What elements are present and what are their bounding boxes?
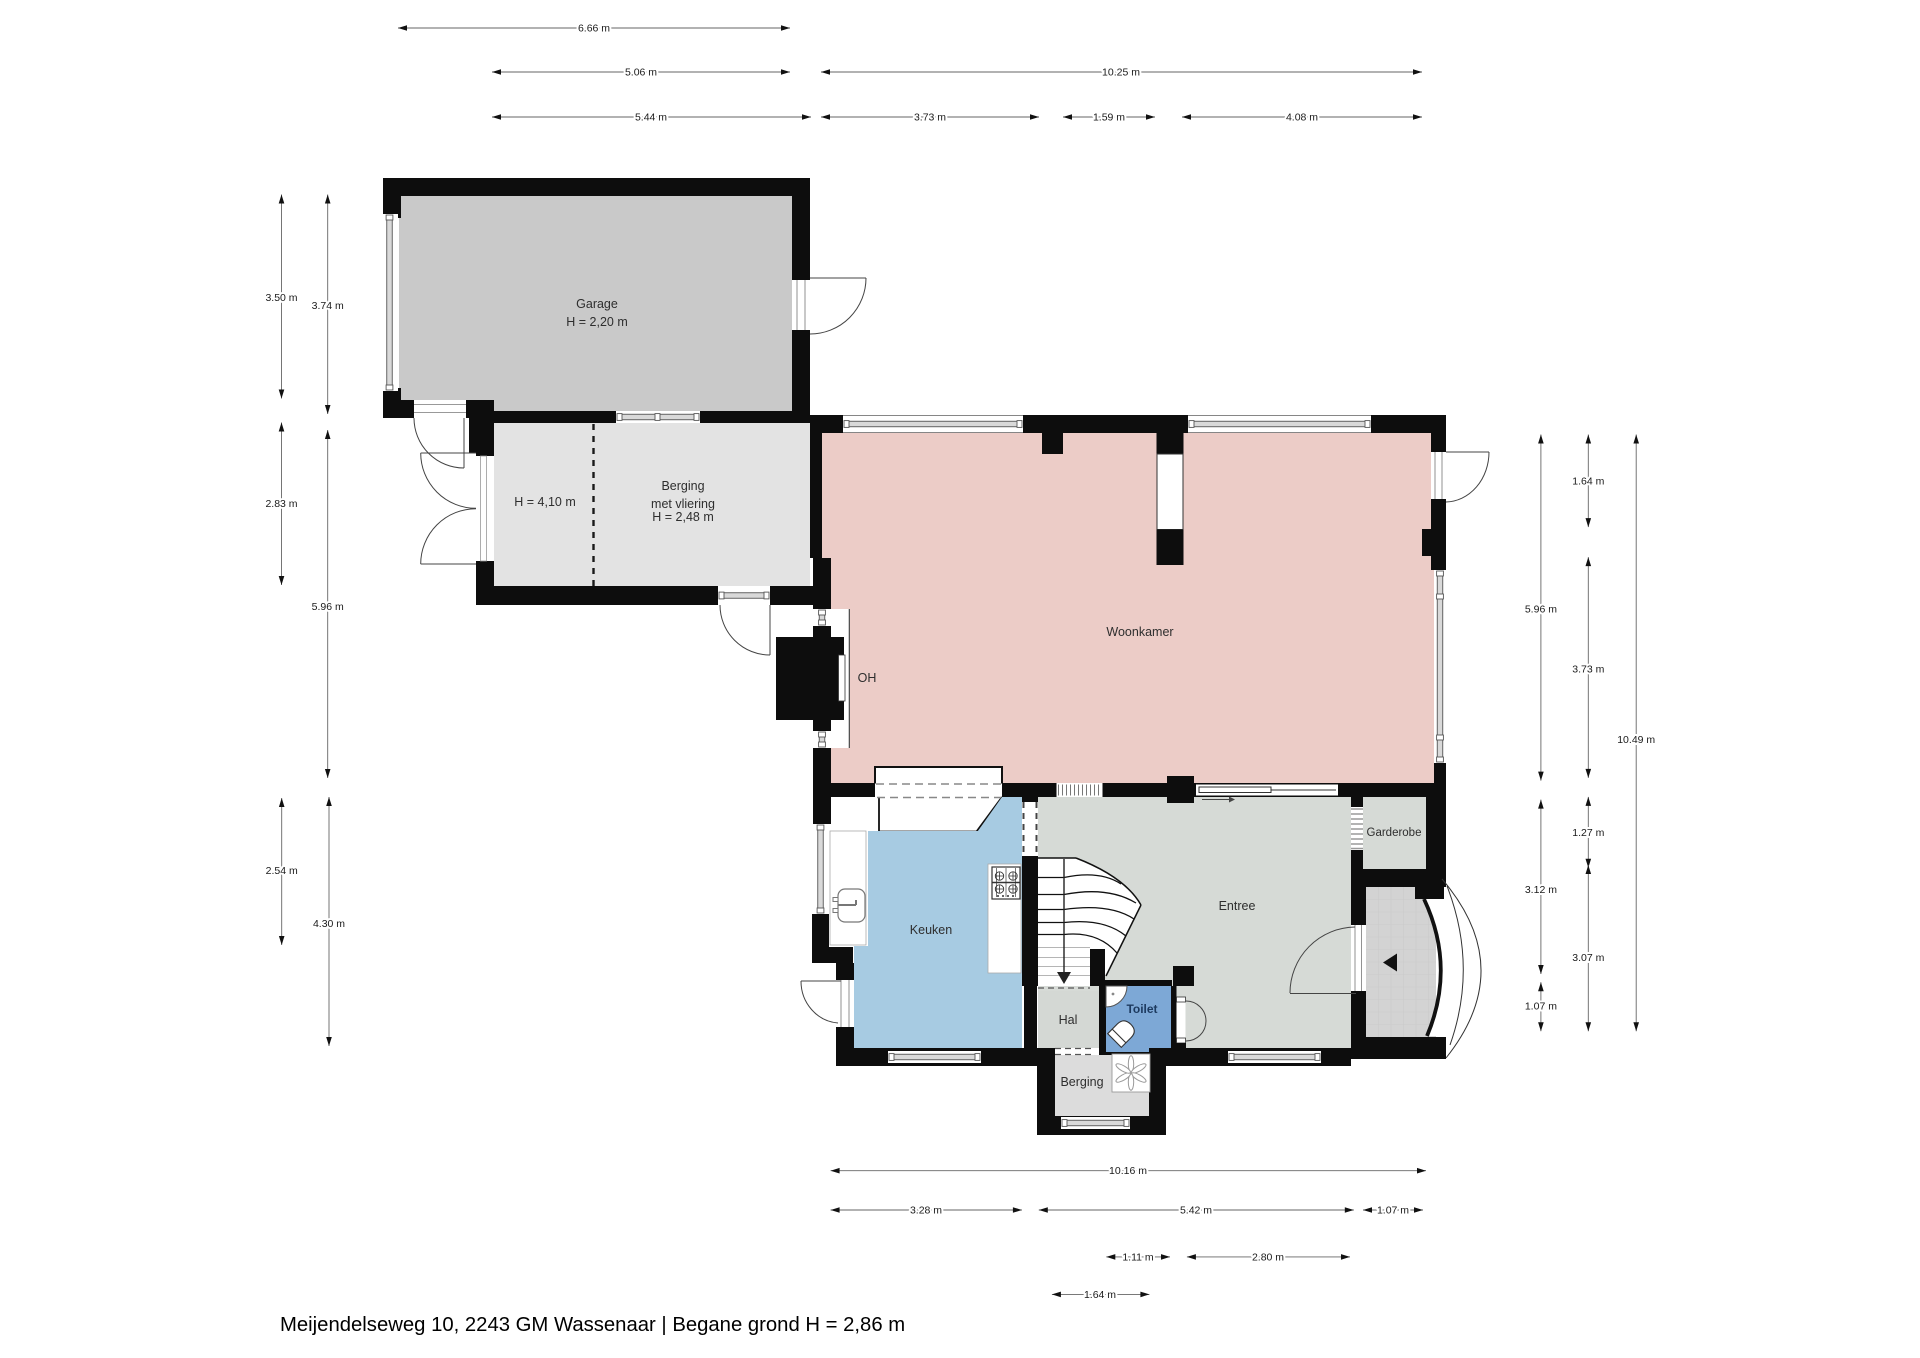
svg-text:H = 4,10 m: H = 4,10 m xyxy=(514,495,576,509)
svg-text:1.11 m: 1.11 m xyxy=(1122,1251,1154,1263)
svg-text:3.12 m: 3.12 m xyxy=(1525,884,1557,896)
svg-text:Meijendelseweg 10, 2243 GM Was: Meijendelseweg 10, 2243 GM Wassenaar | B… xyxy=(280,1314,905,1336)
svg-text:2.83 m: 2.83 m xyxy=(265,498,297,510)
svg-text:Hal: Hal xyxy=(1059,1013,1078,1027)
svg-text:10.16 m: 10.16 m xyxy=(1109,1165,1147,1177)
svg-text:3.50 m: 3.50 m xyxy=(265,292,297,304)
svg-text:Berging: Berging xyxy=(1060,1075,1103,1089)
svg-text:4.08 m: 4.08 m xyxy=(1286,112,1318,124)
svg-text:2.54 m: 2.54 m xyxy=(266,865,298,877)
svg-text:1.07 m: 1.07 m xyxy=(1377,1205,1409,1217)
svg-text:1.64 m: 1.64 m xyxy=(1084,1289,1116,1301)
svg-text:H = 2,48 m: H = 2,48 m xyxy=(652,510,714,524)
svg-text:10.25 m: 10.25 m xyxy=(1102,67,1140,79)
svg-text:5.44 m: 5.44 m xyxy=(635,112,667,124)
svg-text:1.64 m: 1.64 m xyxy=(1572,475,1604,487)
svg-text:6.66 m: 6.66 m xyxy=(578,23,610,35)
svg-text:5.42 m: 5.42 m xyxy=(1180,1205,1212,1217)
svg-text:Entree: Entree xyxy=(1219,899,1256,913)
svg-text:10.49 m: 10.49 m xyxy=(1617,734,1655,746)
svg-text:Woonkamer: Woonkamer xyxy=(1106,625,1173,639)
svg-text:3.07 m: 3.07 m xyxy=(1572,952,1604,964)
svg-text:3.73 m: 3.73 m xyxy=(914,112,946,124)
svg-text:OH: OH xyxy=(858,671,877,685)
svg-text:5.96 m: 5.96 m xyxy=(1525,603,1557,615)
svg-text:5.96 m: 5.96 m xyxy=(312,601,344,613)
svg-text:3.28 m: 3.28 m xyxy=(910,1205,942,1217)
svg-text:H = 2,20 m: H = 2,20 m xyxy=(566,315,628,329)
svg-text:1.27 m: 1.27 m xyxy=(1572,827,1604,839)
svg-text:3.73 m: 3.73 m xyxy=(1572,663,1604,675)
svg-text:Berging: Berging xyxy=(661,479,704,493)
svg-text:4.30 m: 4.30 m xyxy=(313,918,345,930)
svg-text:Toilet: Toilet xyxy=(1126,1002,1157,1016)
svg-text:1.59 m: 1.59 m xyxy=(1093,112,1125,124)
svg-text:5.06 m: 5.06 m xyxy=(625,67,657,79)
svg-text:Garderobe: Garderobe xyxy=(1367,827,1422,839)
svg-text:1.07 m: 1.07 m xyxy=(1525,1001,1557,1013)
svg-text:met vliering: met vliering xyxy=(651,497,715,511)
svg-text:Garage: Garage xyxy=(576,297,618,311)
svg-text:Keuken: Keuken xyxy=(910,923,952,937)
svg-text:3.74 m: 3.74 m xyxy=(312,300,344,312)
svg-text:2.80 m: 2.80 m xyxy=(1252,1251,1284,1263)
